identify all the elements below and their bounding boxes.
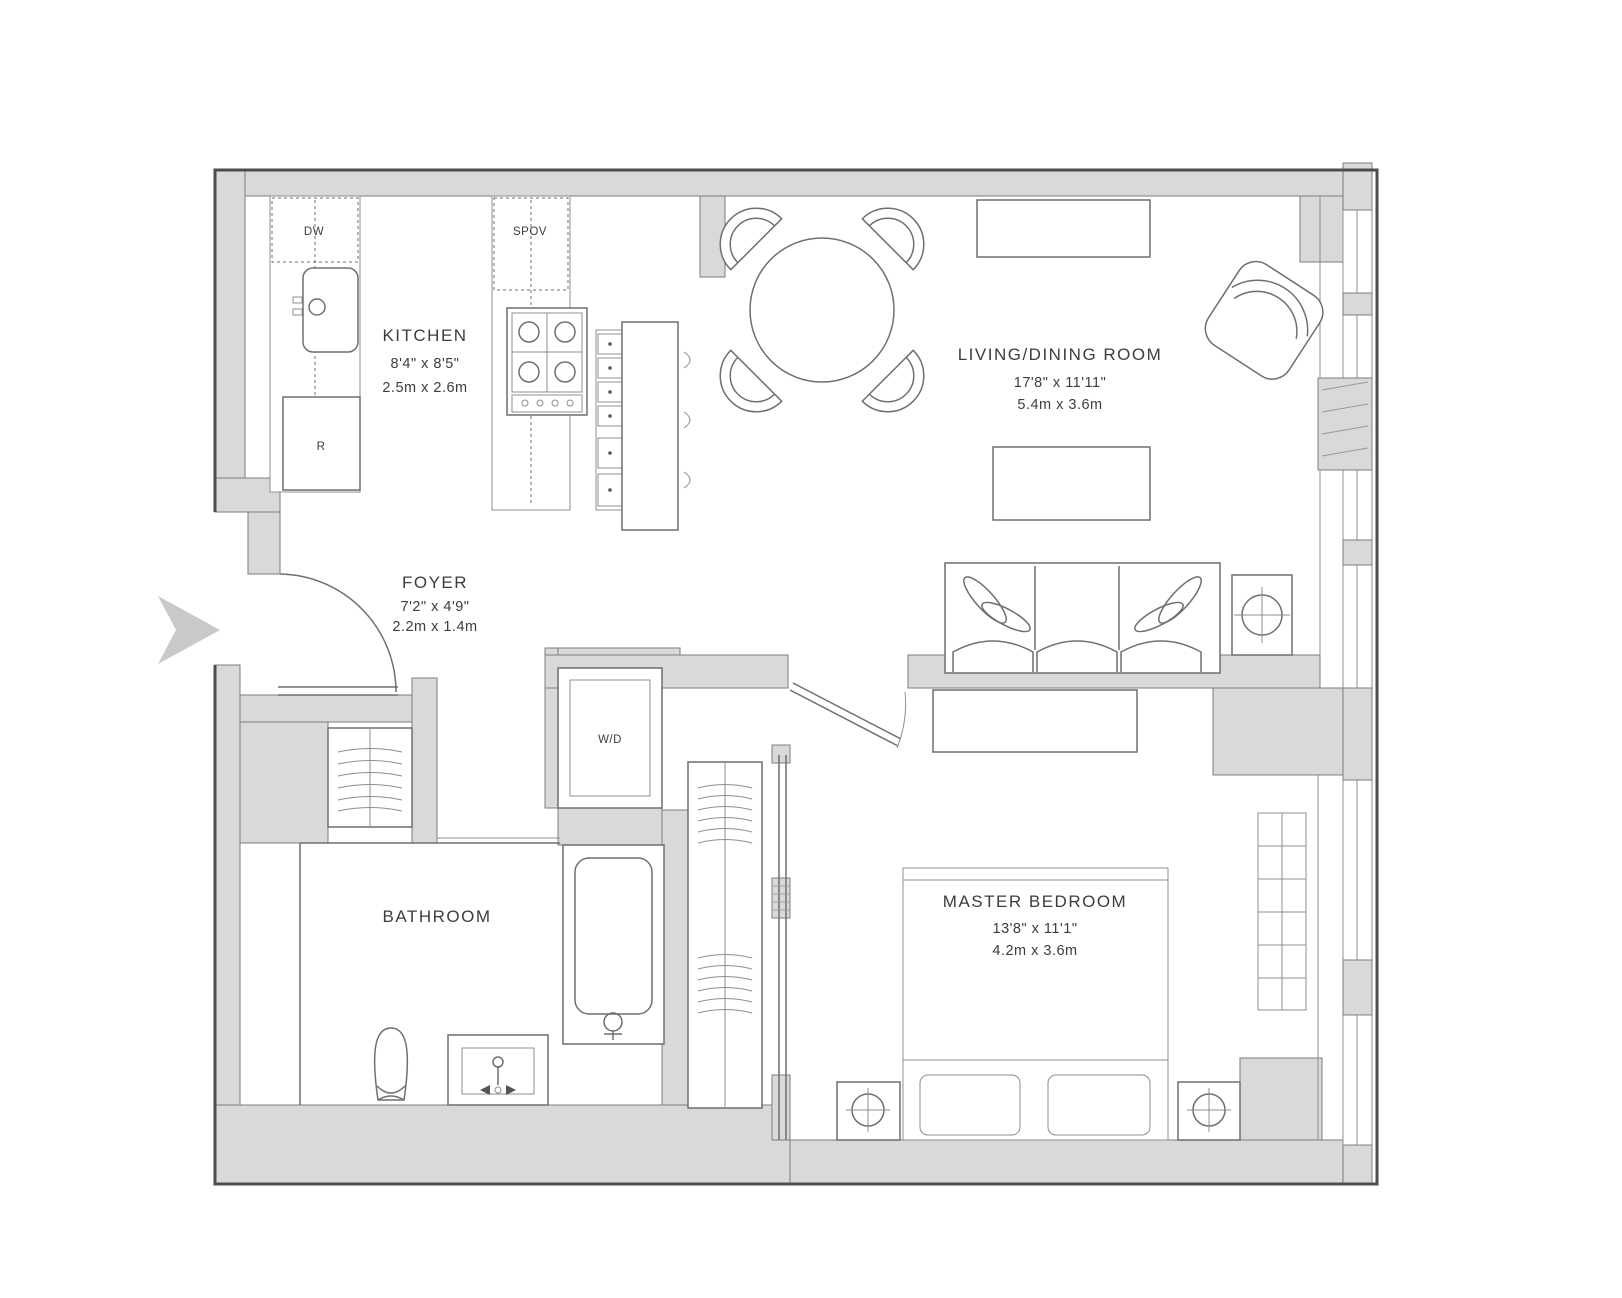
foyer-dim-imperial: 7'2" x 4'9" — [401, 599, 470, 615]
dishwasher-label: DW — [304, 226, 324, 238]
sofa-icon — [945, 563, 1220, 673]
kitchen-drawers-icon — [596, 330, 624, 510]
room-bathroom: BATHROOM — [300, 838, 664, 1105]
kitchen-sink-icon — [293, 268, 358, 352]
foyer-label: FOYER — [402, 573, 468, 592]
bathroom-label: BATHROOM — [383, 907, 492, 926]
master-bedroom-label: MASTER BEDROOM — [943, 892, 1127, 911]
nightstand-lamp-icon — [1178, 1082, 1240, 1140]
living-dining-dim-metric: 5.4m x 3.6m — [1017, 397, 1102, 413]
entry-arrow-icon — [158, 596, 220, 664]
kitchen-dim-imperial: 8'4" x 8'5" — [391, 356, 460, 372]
living-dining-label: LIVING/DINING ROOM — [958, 345, 1163, 364]
kitchen-label: KITCHEN — [382, 326, 467, 345]
dresser-icon — [933, 690, 1137, 752]
living-dining-dim-imperial: 17'8" x 11'11" — [1014, 375, 1106, 391]
kitchen-island — [622, 322, 678, 530]
refrigerator-icon: R — [283, 397, 360, 490]
bathtub-icon — [563, 845, 664, 1044]
bedroom-door-icon — [790, 683, 906, 748]
toilet-icon — [375, 1028, 408, 1100]
pillow-icon — [1048, 1075, 1150, 1135]
floorplan-page: DW R SPOV — [0, 0, 1622, 1298]
stove-icon — [507, 308, 587, 415]
washer-dryer-closet: W/D — [558, 668, 662, 808]
nightstand-lamp-icon — [837, 1082, 900, 1140]
armchair-icon — [1198, 254, 1331, 387]
entry — [158, 574, 398, 695]
kitchen-dim-metric: 2.5m x 2.6m — [382, 380, 467, 396]
coffee-table-icon — [993, 447, 1150, 520]
room-living-dining: LIVING/DINING ROOM 17'8" x 11'11" 5.4m x… — [705, 193, 1330, 673]
entry-door-icon — [278, 574, 398, 695]
dining-table-icon — [705, 193, 938, 426]
console-table-icon — [977, 200, 1150, 257]
master-bedroom-dim-metric: 4.2m x 3.6m — [992, 943, 1077, 959]
room-foyer: FOYER 7'2" x 4'9" 2.2m x 1.4m — [392, 573, 477, 635]
refrigerator-label: R — [317, 441, 326, 453]
pillow-icon — [920, 1075, 1020, 1135]
foyer-dim-metric: 2.2m x 1.4m — [392, 619, 477, 635]
room-kitchen: DW R SPOV — [270, 196, 690, 530]
floorplan-drawing: DW R SPOV — [0, 0, 1622, 1298]
wardrobe-shelves-icon — [1258, 813, 1306, 1010]
end-table-lamp-icon — [1232, 575, 1292, 655]
foyer-closet — [328, 728, 412, 827]
bathroom-sink-icon — [448, 1035, 548, 1105]
window-wall — [1318, 163, 1372, 1184]
master-bedroom-dim-imperial: 13'8" x 11'1" — [993, 921, 1078, 937]
washer-dryer-label: W/D — [598, 734, 622, 746]
oven-label: SPOV — [513, 226, 547, 238]
